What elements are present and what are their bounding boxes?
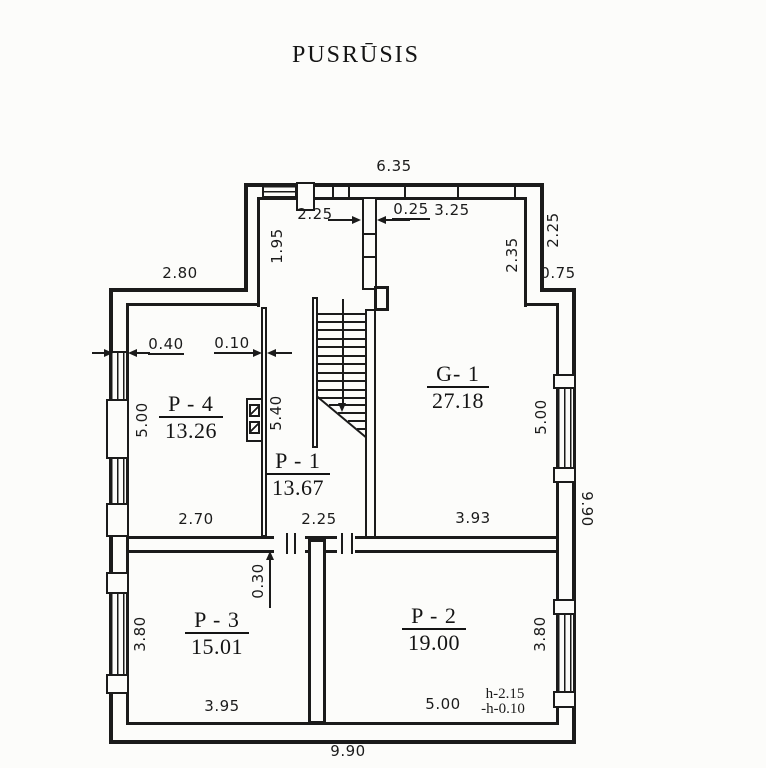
dim-bottom-overall: 9.90 bbox=[326, 743, 370, 759]
height-note-line2: -h-0.10 bbox=[472, 701, 534, 717]
wall-step-block bbox=[374, 286, 389, 311]
dim-overall-top: 6.35 bbox=[373, 158, 415, 174]
wall-interior-lower bbox=[126, 550, 274, 553]
wall-interior-upper bbox=[355, 536, 557, 539]
door-jamb-tick bbox=[341, 533, 343, 554]
dim-arrow-icon bbox=[377, 216, 386, 224]
wall-pier-left bbox=[106, 572, 129, 594]
window-p2 bbox=[556, 613, 575, 693]
stair-direction-line bbox=[342, 299, 344, 403]
room-label-p4: P - 4 13.26 bbox=[151, 392, 231, 443]
window-jamb-tick bbox=[404, 183, 406, 200]
window-p4-upper bbox=[109, 351, 128, 402]
wall-step-outer bbox=[109, 288, 248, 292]
wall-pier-left bbox=[106, 503, 129, 537]
window-top bbox=[262, 184, 297, 199]
door-jamb-tick bbox=[294, 533, 296, 554]
dim-p4-left-span: 5.00 bbox=[134, 400, 150, 440]
dim-arrow-icon bbox=[267, 349, 276, 357]
wall-pier-right bbox=[553, 467, 576, 483]
room-name: G- 1 bbox=[427, 362, 489, 388]
wall-bottom-inner bbox=[126, 722, 559, 725]
dim-hall-length: 5.40 bbox=[268, 393, 284, 433]
dim-right-upper-span: 2.25 bbox=[545, 210, 561, 250]
wall-interior-lower bbox=[355, 550, 557, 553]
wall-p3-p2-partition bbox=[308, 539, 326, 724]
dim-p4-bottom-span: 2.70 bbox=[176, 511, 216, 527]
dim-g1-right-upper: 2.35 bbox=[504, 235, 520, 275]
dim-p2-right-span: 3.80 bbox=[532, 614, 548, 654]
dim-arrow-icon bbox=[253, 349, 262, 357]
dim-line bbox=[92, 352, 104, 354]
room-label-p2: P - 2 19.00 bbox=[394, 604, 474, 655]
dim-arrow-icon bbox=[104, 349, 113, 357]
window-jamb-tick bbox=[332, 183, 334, 199]
room-area: 13.67 bbox=[258, 476, 338, 500]
room-label-p3: P - 3 15.01 bbox=[177, 608, 257, 659]
wall-pier-left bbox=[106, 399, 129, 459]
dim-g1-right-span: 5.00 bbox=[533, 397, 549, 437]
room-name: P - 4 bbox=[159, 392, 223, 418]
window-jamb-tick bbox=[457, 183, 459, 200]
door-jamb-tick bbox=[351, 533, 353, 554]
flue-symbol bbox=[249, 421, 260, 434]
stair-tread bbox=[329, 404, 366, 406]
wall-interior-upper bbox=[126, 536, 274, 539]
wall-segment-tick bbox=[363, 256, 376, 258]
wall-pier-left bbox=[106, 674, 129, 694]
room-area: 13.26 bbox=[151, 419, 231, 443]
room-name: P - 3 bbox=[185, 608, 249, 634]
stair-tread bbox=[338, 412, 366, 414]
wall-right-step-outer bbox=[540, 288, 576, 292]
dim-arrow-icon bbox=[266, 551, 274, 560]
room-area: 27.18 bbox=[418, 389, 498, 413]
wall-upperleft-inner bbox=[257, 197, 260, 307]
wall-segment-tick bbox=[363, 233, 376, 235]
window-p4-lower bbox=[109, 456, 128, 506]
wall-pier-right bbox=[553, 691, 576, 708]
room-label-p1: P - 1 13.67 bbox=[258, 449, 338, 500]
dim-p3-bottom-span: 3.95 bbox=[201, 698, 243, 714]
room-area: 19.00 bbox=[394, 631, 474, 655]
wall-step-inner bbox=[126, 303, 258, 306]
wall-pier-right bbox=[553, 374, 576, 389]
dim-right-step: 0.75 bbox=[538, 265, 578, 281]
wall-right-upper-inner bbox=[524, 197, 527, 307]
dim-hall-wall-thickness: 0.10 bbox=[214, 335, 250, 354]
flue-symbol bbox=[249, 404, 260, 417]
door-jamb-tick bbox=[286, 533, 288, 554]
window-p3 bbox=[109, 591, 128, 676]
dim-arrow-icon bbox=[128, 349, 137, 357]
plan-title: PUSRŪSIS bbox=[266, 42, 446, 69]
dim-right-overall: 9.90 bbox=[579, 489, 595, 529]
dim-hall-bottom-span: 2.25 bbox=[299, 511, 339, 527]
dim-p3-left-span: 3.80 bbox=[132, 614, 148, 654]
wall-pier-right bbox=[553, 599, 576, 615]
dim-left-wall-thickness: 0.40 bbox=[148, 336, 184, 355]
dim-arrow-icon bbox=[352, 216, 361, 224]
stair-tread bbox=[357, 428, 366, 430]
dim-door-offset: 0.30 bbox=[250, 561, 266, 601]
wall-hall-g1-lower bbox=[365, 309, 376, 538]
room-name: P - 2 bbox=[402, 604, 466, 630]
floor-plan-canvas: PUSRŪSIS bbox=[0, 0, 766, 768]
height-note-line1: h-2.15 bbox=[474, 686, 536, 702]
dim-partition-thickness: 0.25 bbox=[392, 201, 430, 220]
wall-hall-g1-upper bbox=[362, 197, 377, 290]
dim-g1-bottom-span: 3.93 bbox=[452, 510, 494, 526]
dim-top-left-span: 2.25 bbox=[295, 206, 335, 222]
wall-upperleft-outer bbox=[244, 183, 248, 292]
room-area: 15.01 bbox=[177, 635, 257, 659]
dim-hall-upper-depth: 1.95 bbox=[269, 226, 285, 266]
stair-down-arrow-icon bbox=[338, 403, 346, 412]
dim-line bbox=[276, 352, 292, 354]
room-name: P - 1 bbox=[266, 449, 330, 475]
window-g1 bbox=[556, 387, 575, 469]
dim-p2-bottom-span: 5.00 bbox=[422, 696, 464, 712]
stair-tread bbox=[348, 420, 366, 422]
dim-p4-top-span: 2.80 bbox=[160, 265, 200, 281]
room-label-g1: G- 1 27.18 bbox=[418, 362, 498, 413]
dim-g1-top-span: 3.25 bbox=[432, 202, 472, 218]
window-jamb-tick bbox=[514, 183, 516, 200]
wall-right-step-inner bbox=[527, 303, 559, 306]
window-jamb-tick bbox=[348, 183, 350, 199]
dim-line bbox=[269, 556, 271, 608]
